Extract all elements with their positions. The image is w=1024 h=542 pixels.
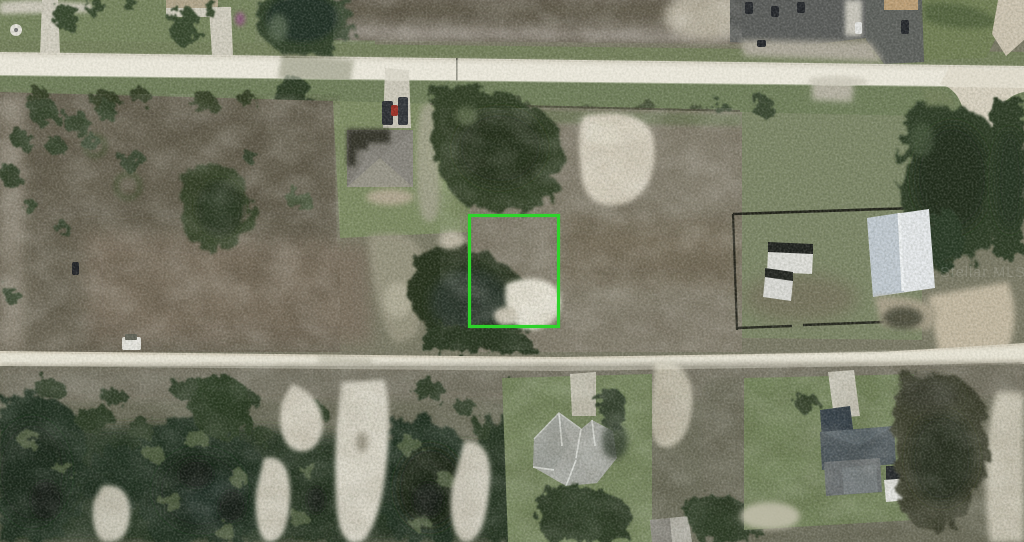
svg-text:Stellar MLS: Stellar MLS [940,265,1024,281]
